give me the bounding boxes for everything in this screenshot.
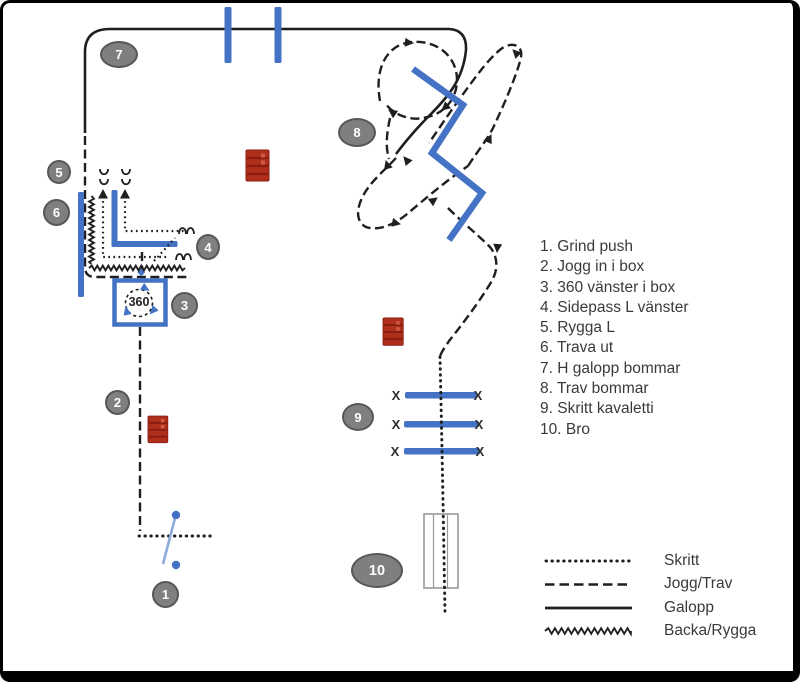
station-badge-10: 10: [351, 553, 403, 588]
station-number: 2: [114, 395, 121, 410]
legend-label-skritt: Skritt: [664, 552, 699, 570]
exercise-list-item: 3. 360 vänster i box: [540, 278, 688, 298]
station-number: 8: [353, 125, 360, 140]
station-badge-7: 7: [100, 41, 138, 68]
zigzag-trot-poles: [413, 69, 482, 240]
station-number: 3: [181, 298, 188, 313]
course-diagram-page: { "diagram": { "stations": [ {"number":"…: [0, 0, 800, 682]
station-number: 1: [162, 587, 169, 602]
station-badge-4: 4: [196, 234, 220, 260]
legend-label-jogg-trav: Jogg/Trav: [664, 575, 732, 593]
exercise-list-item: 1. Grind push: [540, 237, 688, 257]
station-badge-3: 3: [171, 292, 198, 319]
station-number: 4: [204, 240, 211, 255]
station-number: 5: [55, 165, 62, 180]
canter-poles: [225, 7, 282, 63]
exercise-list-item: 6. Trava ut: [540, 338, 688, 358]
pole-x-marker: X: [474, 444, 486, 459]
station-badge-8: 8: [338, 118, 376, 147]
pole-x-marker: X: [472, 388, 484, 403]
station-badge-1: 1: [152, 581, 179, 608]
exercise-list-item: 2. Jogg in i box: [540, 257, 688, 277]
exercise-list-item: 10. Bro: [540, 420, 688, 440]
station-badge-2: 2: [105, 390, 130, 415]
gate-obstacle: [163, 511, 180, 569]
barrel: [383, 318, 403, 345]
exercise-list-item: 4. Sidepass L vänster: [540, 298, 688, 318]
pole-x-marker: X: [473, 417, 485, 432]
legend-line-samples: [545, 561, 632, 634]
barrel: [246, 150, 269, 181]
exercise-list-item: 8. Trav bommar: [540, 379, 688, 399]
exercise-list: 1. Grind push 2. Jogg in i box 3. 360 vä…: [540, 237, 688, 440]
exercise-list-item: 9. Skritt kavaletti: [540, 399, 688, 419]
bridge-obstacle: [424, 514, 458, 588]
barrel: [148, 416, 168, 443]
station-number: 6: [53, 205, 60, 220]
legend-label-galopp: Galopp: [664, 599, 714, 617]
legend-label-backa-rygga: Backa/Rygga: [664, 622, 756, 640]
station-number: 7: [115, 47, 122, 62]
rotation-degrees-label: 360: [117, 295, 161, 309]
pole-x-marker: X: [390, 388, 402, 403]
station-number: 10: [369, 563, 385, 579]
sidepass-path: [98, 189, 186, 261]
station-number: 9: [354, 410, 361, 425]
station-badge-5: 5: [47, 160, 71, 184]
pole-x-marker: X: [389, 444, 401, 459]
station-badge-9: 9: [342, 403, 374, 431]
exercise-list-item: 7. H galopp bommar: [540, 359, 688, 379]
pole-x-marker: X: [390, 417, 402, 432]
station-badge-6: 6: [43, 199, 70, 226]
exercise-list-item: 5. Rygga L: [540, 318, 688, 338]
